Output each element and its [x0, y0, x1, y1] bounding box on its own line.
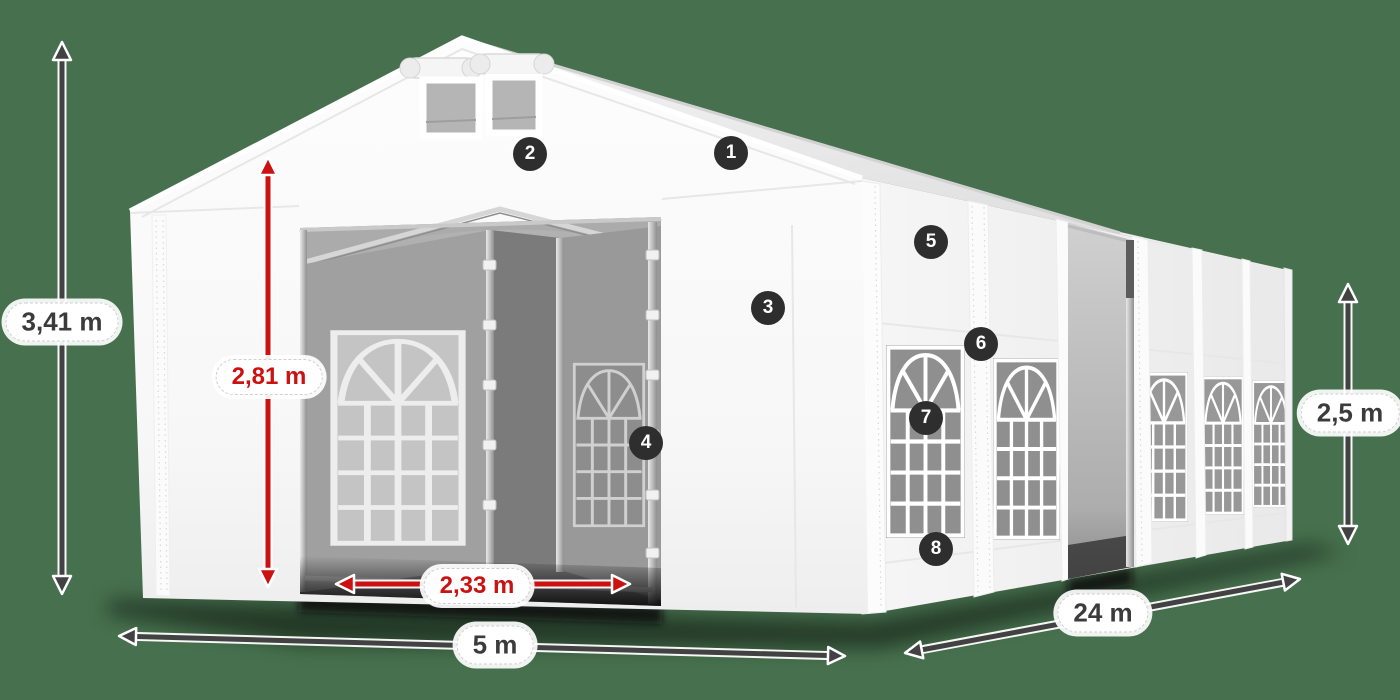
callout-8[interactable]: 8 — [919, 532, 953, 566]
callout-7[interactable]: 7 — [909, 401, 943, 435]
dim-label-side-height: 2,5 m — [1301, 394, 1400, 433]
dim-label-entrance-width: 2,33 m — [424, 568, 531, 604]
side-window — [1202, 376, 1244, 515]
callout-1[interactable]: 1 — [714, 136, 748, 170]
vent-roller — [400, 58, 482, 78]
vent-roller — [470, 54, 554, 74]
side-window — [886, 345, 965, 538]
callout-5[interactable]: 5 — [914, 225, 948, 259]
side-window — [1252, 380, 1290, 508]
dim-label-length: 24 m — [1057, 594, 1148, 633]
callout-2[interactable]: 2 — [513, 137, 547, 171]
callout-4[interactable]: 4 — [629, 426, 663, 460]
side-door-opening — [1068, 223, 1134, 579]
entrance-interior — [300, 209, 661, 606]
interior-window — [330, 330, 466, 546]
gable-vent — [489, 77, 539, 133]
dim-label-total-height: 3,41 m — [6, 303, 119, 342]
side-window — [993, 358, 1060, 540]
tent-illustration — [0, 0, 1400, 700]
gable-vents — [400, 54, 554, 136]
callout-3[interactable]: 3 — [751, 291, 785, 325]
tent-diagram: 3,41 m 2,81 m 2,33 m 5 m 24 m 2,5 m 1 2 … — [0, 0, 1400, 700]
gable-vent — [423, 80, 479, 136]
callout-6[interactable]: 6 — [964, 327, 998, 361]
dim-label-front-width: 5 m — [457, 626, 534, 665]
dim-label-entrance-height: 2,81 m — [216, 359, 323, 395]
